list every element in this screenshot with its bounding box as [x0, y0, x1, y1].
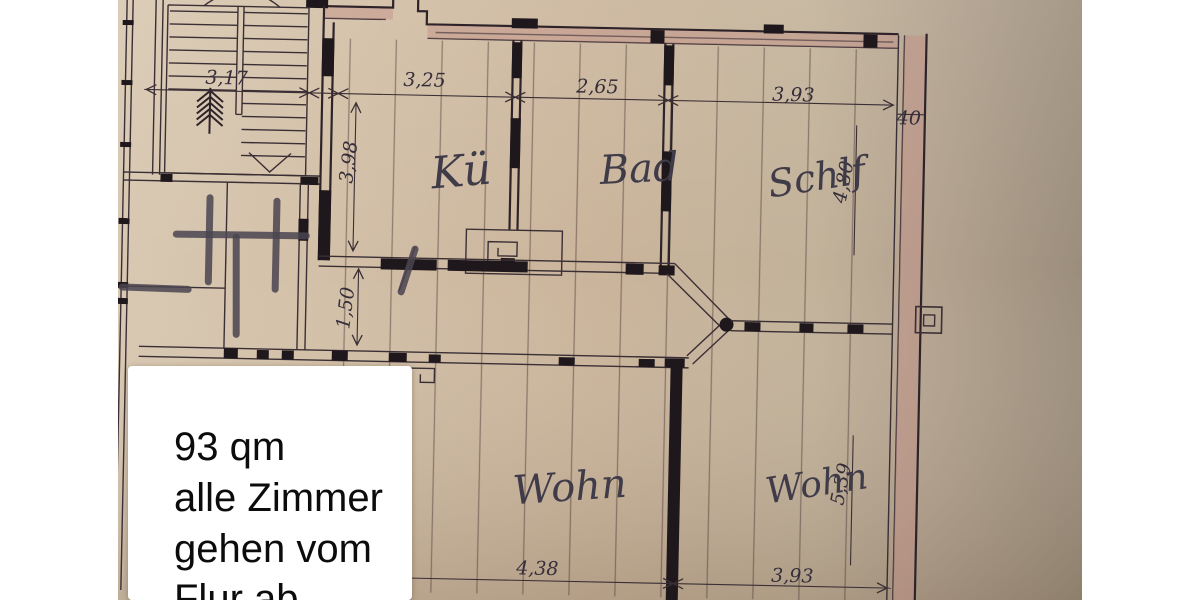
dimension-label-bath-width: 2,65: [575, 75, 619, 98]
dimension-label-stairs: 3,17: [205, 67, 249, 90]
room-label-living-left: Wohn: [511, 461, 628, 514]
dimension-label-living-left-width: 4,38: [515, 557, 559, 580]
dimension-label-living-right-width: 3,93: [771, 565, 814, 588]
note-line-rooms: alle Zimmer: [174, 473, 412, 524]
note-line-access-2: Flur ab: [174, 574, 412, 600]
dimension-label-wall-thickness: 40: [896, 107, 922, 130]
note-line-access-1: gehen vom: [174, 524, 412, 575]
note-overlay: 93 qm alle Zimmer gehen vom Flur ab: [128, 366, 412, 600]
dimension-label-kitchen-width: 3,25: [403, 69, 446, 92]
note-line-area: 93 qm: [174, 422, 412, 473]
screenshot-stage: 3,17 3,25 2,65 3,93 40 3,98 1,50 4,80 5,…: [0, 0, 1200, 600]
room-label-bath: Bad: [598, 144, 680, 194]
dimension-label-bedroom-width: 3,93: [772, 84, 815, 107]
room-label-kitchen: Kü: [428, 144, 493, 200]
